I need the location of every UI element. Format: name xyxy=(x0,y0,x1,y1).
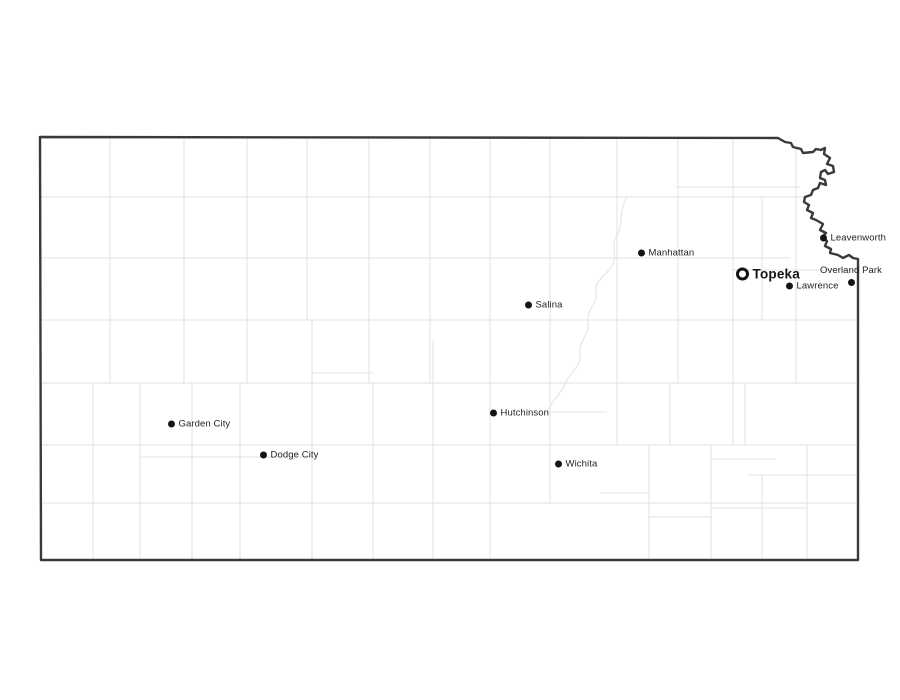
state-shape xyxy=(40,137,858,560)
city-dot xyxy=(820,235,827,242)
city-dot xyxy=(848,279,855,286)
city-dot xyxy=(168,421,175,428)
city-dot xyxy=(525,302,532,309)
city-marker-salina[interactable]: Salina xyxy=(525,300,563,311)
city-label: Dodge City xyxy=(271,450,319,461)
city-dot xyxy=(260,452,267,459)
city-marker-garden-city[interactable]: Garden City xyxy=(168,419,231,430)
city-dot xyxy=(490,410,497,417)
kansas-map-svg xyxy=(0,0,900,700)
city-dot xyxy=(638,250,645,257)
city-label: Lawrence xyxy=(797,281,839,292)
capital-ring-icon xyxy=(736,268,749,281)
city-marker-dodge-city[interactable]: Dodge City xyxy=(260,450,319,461)
city-label: Wichita xyxy=(566,459,598,470)
city-dot xyxy=(555,461,562,468)
city-label: Manhattan xyxy=(649,248,695,259)
city-marker-wichita[interactable]: Wichita xyxy=(555,459,598,470)
city-marker-hutchinson[interactable]: Hutchinson xyxy=(490,408,550,419)
city-label: Leavenworth xyxy=(831,233,887,244)
city-dot xyxy=(786,283,793,290)
kansas-map: Garden City Dodge City Hutchinson Wichit… xyxy=(0,0,900,700)
city-label: Topeka xyxy=(753,267,800,282)
city-label: Salina xyxy=(536,300,563,311)
city-marker-manhattan[interactable]: Manhattan xyxy=(638,248,695,259)
city-marker-leavenworth[interactable]: Leavenworth xyxy=(820,233,887,244)
city-marker-topeka-capital[interactable]: Topeka xyxy=(736,267,800,282)
city-marker-lawrence[interactable]: Lawrence xyxy=(786,281,839,292)
city-label: Hutchinson xyxy=(501,408,550,419)
city-label: Overland Park xyxy=(820,265,882,276)
city-label: Garden City xyxy=(179,419,231,430)
